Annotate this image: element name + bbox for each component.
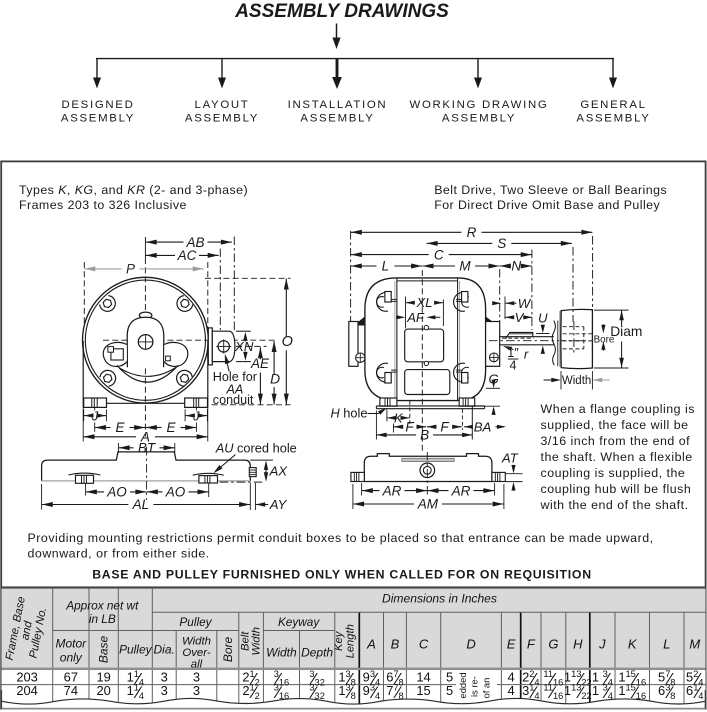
svg-text:W: W (518, 296, 532, 311)
svg-text:Providing mounting restriction: Providing mounting restrictions permit c… (28, 531, 654, 545)
svg-text:Width: Width (251, 627, 263, 656)
svg-text:74: 74 (64, 683, 78, 698)
svg-text:3: 3 (193, 683, 200, 698)
svg-text:When a flange coupling is: When a flange coupling is (541, 402, 695, 416)
svg-text:ASSEMBLY: ASSEMBLY (300, 113, 374, 125)
svg-text:ASSEMBLY: ASSEMBLY (576, 113, 650, 125)
svg-text:ASSEMBLY: ASSEMBLY (61, 113, 135, 125)
svg-text:4: 4 (510, 359, 517, 373)
svg-text:downward, or from either side.: downward, or from either side. (28, 547, 210, 561)
svg-text:Keyway: Keyway (278, 615, 320, 629)
svg-text:AM: AM (417, 497, 439, 512)
svg-text:E: E (115, 420, 125, 435)
svg-text:AF: AF (406, 310, 425, 325)
svg-text:XN: XN (234, 339, 254, 354)
svg-text:ASSEMBLY: ASSEMBLY (442, 113, 516, 125)
svg-text:M: M (689, 637, 700, 652)
svg-text:B: B (391, 637, 400, 652)
svg-text:F: F (440, 420, 449, 435)
svg-text:AO: AO (165, 485, 186, 500)
svg-text:Over-: Over- (182, 647, 210, 659)
svg-text:L: L (382, 259, 390, 274)
svg-text:AO: AO (106, 485, 127, 500)
svg-text:GENERAL: GENERAL (580, 99, 646, 111)
svg-text:J: J (91, 409, 99, 424)
svg-text:ASSEMBLY DRAWINGS: ASSEMBLY DRAWINGS (234, 1, 449, 22)
svg-text:AU cored hole: AU cored hole (215, 441, 297, 456)
svg-text:G: G (548, 637, 558, 652)
svg-text:P: P (126, 262, 135, 277)
svg-text:supplied, the face will be: supplied, the face will be (541, 418, 689, 432)
svg-text:For Direct Drive Omit Base and: For Direct Drive Omit Base and Pulley (434, 198, 660, 212)
svg-text:AR: AR (382, 483, 402, 498)
svg-text:3/16 inch from the end of: 3/16 inch from the end of (541, 434, 691, 448)
svg-text:M: M (459, 259, 471, 274)
svg-text:LAYOUT: LAYOUT (195, 99, 250, 111)
svg-text:Approx net wt: Approx net wt (65, 598, 139, 612)
svg-text:R: R (467, 225, 477, 240)
svg-text:S: S (497, 236, 506, 251)
svg-text:AR: AR (451, 483, 471, 498)
svg-text:B: B (420, 428, 429, 443)
svg-text:coupling hub will be flush: coupling hub will be flush (541, 482, 692, 496)
svg-text:AE: AE (250, 356, 270, 371)
svg-text:N: N (511, 259, 521, 274)
svg-text:K: K (628, 637, 638, 652)
svg-text:Width: Width (182, 636, 211, 648)
svg-text:Motor: Motor (55, 637, 87, 651)
svg-text:D: D (466, 637, 475, 652)
svg-text:coupling is supplied, the: coupling is supplied, the (541, 466, 686, 480)
svg-text:15: 15 (416, 683, 430, 698)
svg-text:Diam: Diam (610, 324, 642, 339)
svg-text:Depth: Depth (301, 645, 333, 659)
svg-text:Width: Width (562, 375, 591, 387)
svg-text:C: C (419, 637, 429, 652)
svg-text:edded: edded (457, 672, 468, 698)
svg-text:AC: AC (177, 248, 197, 263)
svg-text:O: O (282, 334, 293, 350)
svg-text:20: 20 (96, 683, 110, 698)
svg-text:Types K, KG, and KR (2- and 3-: Types K, KG, and KR (2- and 3-phase) (19, 183, 248, 197)
svg-text:AX: AX (269, 463, 289, 478)
svg-text:BA: BA (474, 419, 492, 434)
svg-text:Base: Base (97, 636, 111, 664)
svg-text:WORKING DRAWING: WORKING DRAWING (410, 99, 549, 111)
svg-text:Dia.: Dia. (154, 643, 175, 657)
svg-text:DESIGNED: DESIGNED (61, 99, 134, 111)
svg-text:Bore: Bore (221, 637, 235, 663)
svg-text:H hole: H hole (331, 406, 368, 421)
svg-text:J: J (598, 637, 606, 652)
svg-text:V: V (515, 310, 525, 325)
svg-text:AY: AY (269, 497, 288, 512)
svg-text:H: H (573, 637, 583, 652)
svg-text:Key: Key (333, 630, 345, 651)
svg-text:Frames 203 to 326 Inclusive: Frames 203 to 326 Inclusive (19, 198, 187, 212)
svg-text:U: U (538, 311, 548, 326)
svg-text:Belt Drive, Two Sleeve or Ball: Belt Drive, Two Sleeve or Ball Bearings (434, 183, 667, 197)
svg-text:F: F (405, 420, 414, 435)
svg-text:in LB: in LB (89, 612, 116, 626)
svg-text:3: 3 (161, 683, 168, 698)
svg-text:AT: AT (501, 451, 519, 466)
svg-text:ASSEMBLY: ASSEMBLY (185, 113, 259, 125)
svg-text:INSTALLATION: INSTALLATION (288, 99, 388, 111)
svg-text:conduit: conduit (213, 393, 254, 407)
svg-text:L: L (663, 637, 670, 652)
svg-text:Width: Width (266, 645, 297, 659)
svg-text:Length: Length (345, 624, 357, 658)
svg-text:C: C (434, 247, 444, 262)
svg-text:K: K (394, 410, 403, 425)
svg-text:Belt: Belt (239, 631, 251, 651)
svg-text:r: r (524, 347, 529, 362)
svg-text:with the end of the shaft.: with the end of the shaft. (540, 498, 689, 512)
svg-text:5: 5 (446, 683, 453, 698)
svg-text:4: 4 (507, 683, 514, 698)
svg-text:Pulley: Pulley (119, 643, 153, 657)
svg-text:BASE AND PULLEY FURNISHED ONLY: BASE AND PULLEY FURNISHED ONLY WHEN CALL… (92, 568, 592, 582)
svg-text:AL: AL (132, 497, 150, 512)
svg-text:of an: of an (481, 678, 492, 699)
svg-text:the shaft. When a flexible: the shaft. When a flexible (541, 450, 693, 464)
svg-text:only: only (60, 650, 83, 664)
svg-text:E: E (166, 420, 176, 435)
svg-text:BT: BT (138, 441, 157, 456)
svg-text:all: all (191, 658, 203, 670)
svg-text:Dimensions in Inches: Dimensions in Inches (382, 592, 497, 606)
svg-text:is re-: is re- (469, 676, 480, 697)
svg-text:J: J (192, 409, 200, 424)
svg-text:XL: XL (416, 295, 433, 310)
svg-text:Pulley: Pulley (179, 615, 212, 629)
svg-text:D: D (270, 371, 280, 386)
svg-text:204: 204 (16, 683, 38, 698)
svg-text:F: F (527, 637, 536, 652)
svg-text:A: A (366, 637, 376, 652)
svg-text:E: E (507, 637, 516, 652)
